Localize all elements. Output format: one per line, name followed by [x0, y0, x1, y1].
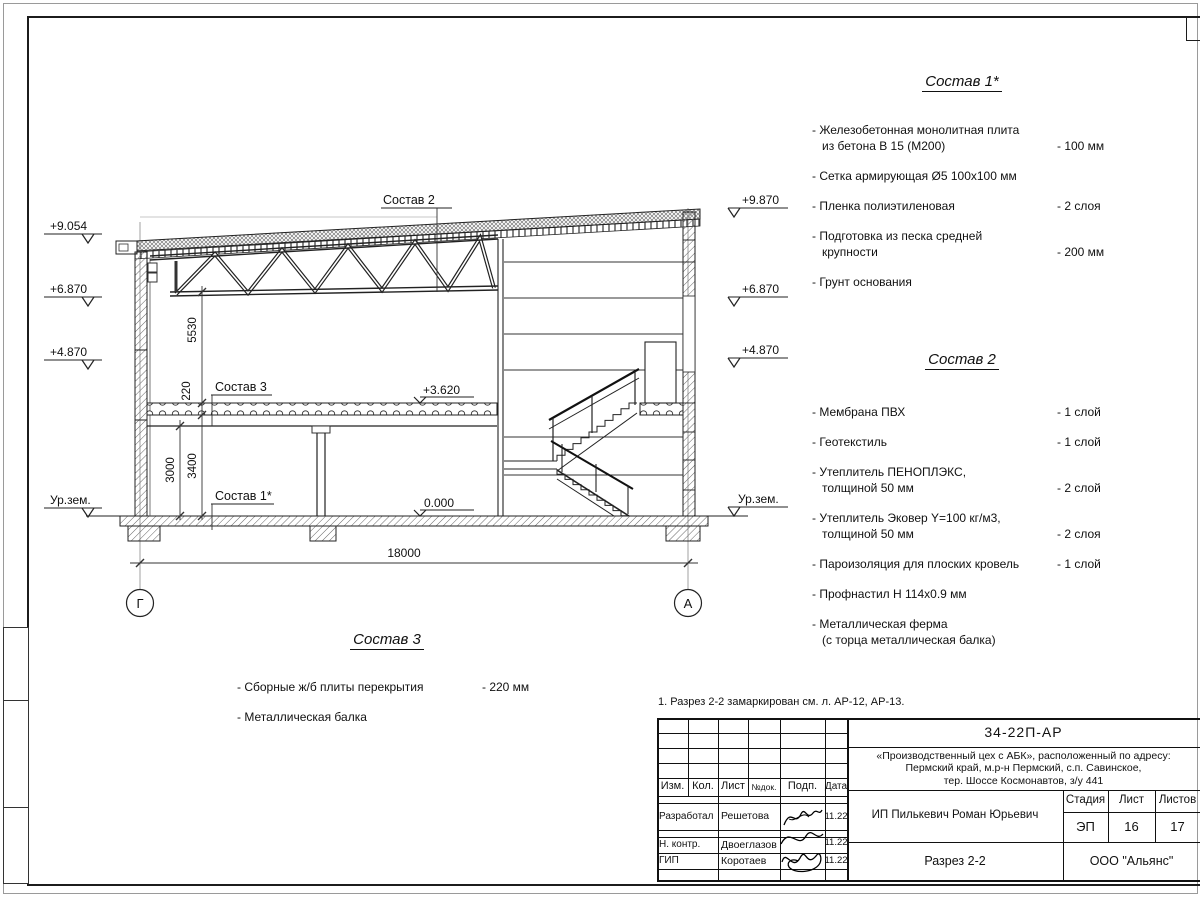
list-item: - Геотекстиль - 1 слой	[812, 434, 1112, 450]
doc-code: 34-22П-АР	[847, 718, 1200, 747]
list-item: - Утеплитель ПЕНОПЛЭКС, толщиной 50 мм -…	[812, 464, 1112, 496]
signature-reshetova	[781, 805, 824, 829]
layers-list-sostav1: Состав 1* - Железобетонная монолитная пл…	[812, 74, 1112, 304]
list-item: - Металлическая ферма (с торца металличе…	[812, 616, 1112, 648]
object-description: «Производственный цех с АБК», расположен…	[847, 747, 1200, 790]
margin-box-3	[3, 807, 29, 884]
list-title: Состав 3	[237, 632, 537, 648]
row-role: Разработал	[659, 803, 717, 830]
row-role: Н. контр.	[659, 837, 717, 853]
title-block: Изм. Кол. Лист №док. Подп. Дата Разработ…	[657, 718, 1200, 882]
col-izm: Изм.	[657, 778, 688, 796]
layers-list-sostav3: Состав 3 - Сборные ж/б плиты перекрытия …	[237, 632, 537, 739]
list-item: - Профнастил Н 114х0.9 мм	[812, 586, 1112, 602]
sheet-label: Лист	[1108, 790, 1155, 812]
sheet-note: 1. Разрез 2-2 замаркирован см. л. АР-12,…	[658, 696, 904, 708]
col-kol: Кол.	[688, 778, 718, 796]
list-item: - Сборные ж/б плиты перекрытия - 220 мм	[237, 679, 537, 695]
col-list: Лист	[718, 778, 748, 796]
margin-box-1	[3, 627, 29, 702]
row-name: Двоеглазов	[721, 837, 779, 853]
list-item: - Пленка полиэтиленовая - 2 слоя	[812, 198, 1112, 214]
list-title: Состав 2	[812, 352, 1112, 368]
sheets-label: Листов	[1155, 790, 1200, 812]
list-item: - Пароизоляция для плоских кровель - 1 с…	[812, 556, 1112, 572]
row-date: 11.22	[825, 835, 847, 851]
stage-value: ЭП	[1063, 812, 1108, 842]
col-ndok: №док.	[748, 778, 780, 796]
signature-koritaev-dvoeglazov	[776, 828, 826, 876]
list-item: - Металлическая балка	[237, 709, 537, 725]
row-role: ГИП	[659, 853, 717, 869]
list-item: - Железобетонная монолитная плита из бет…	[812, 122, 1112, 154]
client-name: ИП Пилькевич Роман Юрьевич	[847, 790, 1063, 842]
list-item: - Грунт основания	[812, 274, 1112, 290]
list-item: - Утеплитель Эковер Y=100 кг/м3, толщино…	[812, 510, 1112, 542]
row-name: Решетова	[721, 803, 779, 830]
drawing-sheet: { "sheet": { "note": "1. Разрез 2-2 зама…	[0, 0, 1200, 900]
drawing-title: Разрез 2-2	[847, 842, 1063, 880]
company-name: ООО "Альянс"	[1063, 842, 1200, 880]
row-date: 11.22	[825, 853, 847, 869]
format-box	[1186, 16, 1200, 41]
list-title: Состав 1*	[812, 74, 1112, 90]
sheets-total: 17	[1155, 812, 1200, 842]
sheet-number: 16	[1108, 812, 1155, 842]
stage-label: Стадия	[1063, 790, 1108, 812]
col-data: Дата	[825, 778, 847, 796]
list-item: - Мембрана ПВХ - 1 слой	[812, 404, 1112, 420]
list-item: - Подготовка из песка средней крупности …	[812, 228, 1112, 260]
row-name: Коротаев	[721, 853, 779, 869]
col-podp: Подп.	[780, 778, 825, 796]
margin-box-2	[3, 700, 29, 809]
row-date: 11.22	[825, 803, 847, 830]
layers-list-sostav2: Состав 2 - Мембрана ПВХ - 1 слой - Геоте…	[812, 352, 1112, 662]
list-item: - Сетка армирующая Ø5 100х100 мм	[812, 168, 1112, 184]
